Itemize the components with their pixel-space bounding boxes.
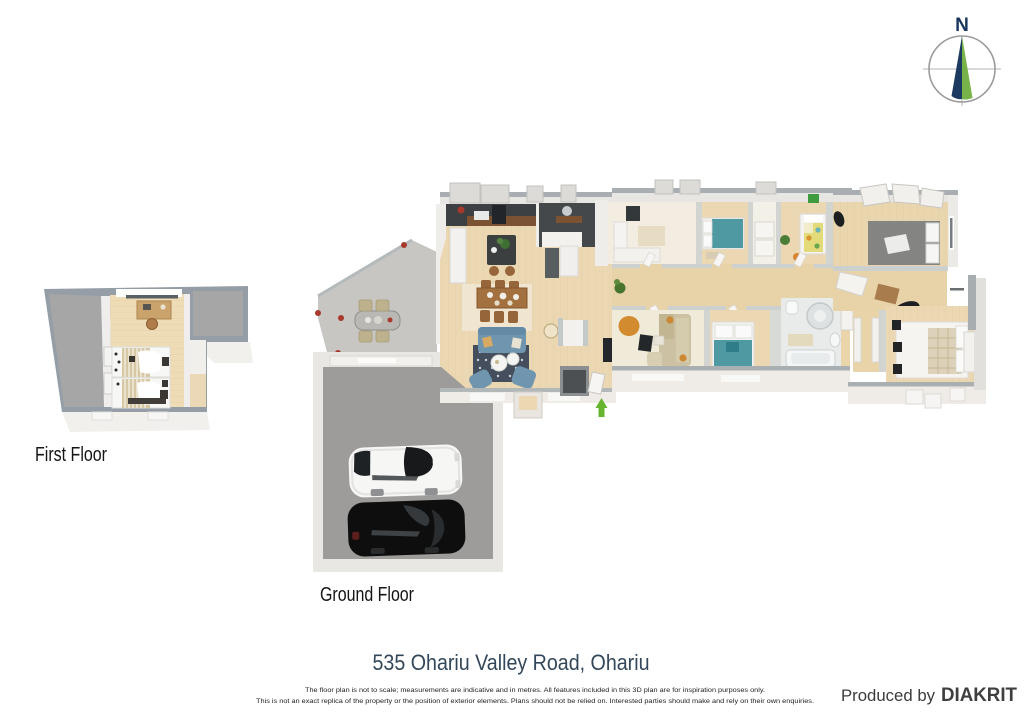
svg-text:Produced by: Produced by [841, 686, 935, 705]
svg-text:First Floor: First Floor [35, 443, 107, 466]
svg-text:This is not an exact replica o: This is not an exact replica of the prop… [256, 698, 814, 705]
svg-text:Ground Floor: Ground Floor [320, 583, 414, 606]
svg-text:535 Ohariu Valley Road, Ohariu: 535 Ohariu Valley Road, Ohariu [373, 650, 650, 675]
svg-text:N: N [955, 15, 969, 36]
svg-text:DIAKRIT: DIAKRIT [941, 685, 1017, 706]
svg-text:The floor plan is not to scale: The floor plan is not to scale; measurem… [305, 687, 765, 694]
